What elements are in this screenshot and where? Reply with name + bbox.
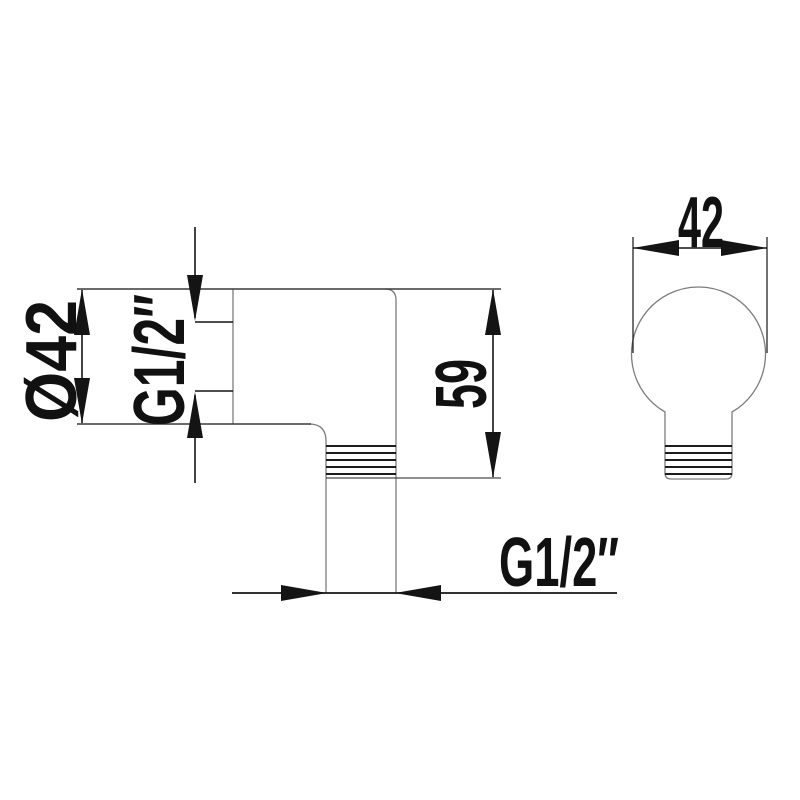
front-view	[632, 287, 766, 479]
side-view-right-edge	[385, 289, 396, 593]
side-view-leg-left-edge	[309, 424, 326, 593]
label-width-42: 42	[678, 183, 724, 263]
front-view-thread-lines	[665, 446, 732, 474]
label-height-59: 59	[422, 359, 502, 409]
label-thread-side: G1/2″	[120, 294, 200, 426]
label-diameter-42: Ø42	[12, 300, 92, 422]
side-view	[233, 289, 501, 593]
arrowhead-up	[485, 289, 501, 335]
arrowhead-right	[281, 585, 327, 601]
arrowhead-right	[721, 240, 767, 256]
label-thread-bottom: G1/2″	[499, 523, 619, 601]
shower-elbow-technical-drawing: 42 Ø42 G1/2″ 59 G1/2″	[0, 0, 800, 800]
dimension-labels: 42 Ø42 G1/2″ 59 G1/2″	[12, 183, 724, 601]
arrowhead-left	[633, 240, 679, 256]
technical-drawing-canvas: 42 Ø42 G1/2″ 59 G1/2″	[0, 0, 800, 800]
front-view-body-outline	[632, 287, 766, 479]
arrowhead-left	[395, 585, 441, 601]
arrowhead-down	[485, 432, 501, 478]
side-view-thread-lines	[326, 446, 396, 474]
